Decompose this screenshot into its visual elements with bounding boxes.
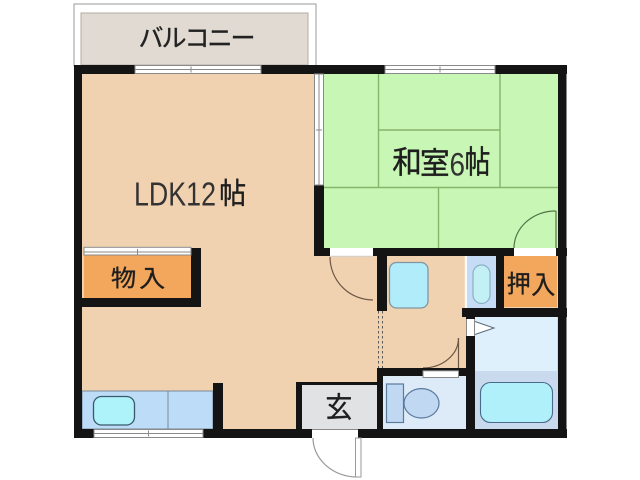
- svg-text:LDK12: LDK12: [134, 176, 216, 213]
- svg-text:6: 6: [450, 146, 466, 182]
